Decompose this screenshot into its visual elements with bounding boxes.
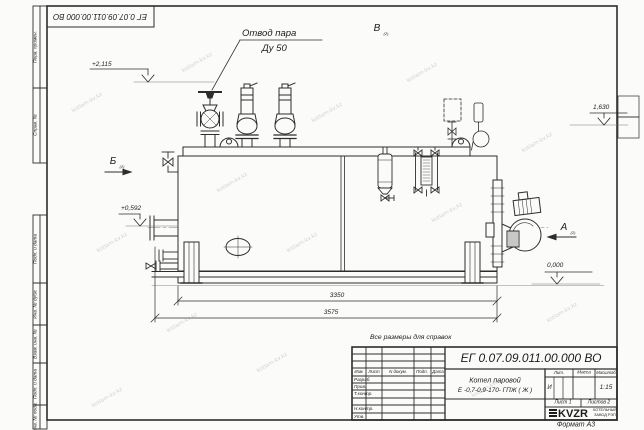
row-utv: Утв.	[354, 415, 364, 420]
view-arrow-a	[548, 234, 576, 239]
margin-stamp-sprav-no: Справ. №	[35, 114, 40, 136]
elevation-zero: 0,000	[547, 263, 563, 270]
support-leg-right	[462, 242, 483, 283]
view-label-b: Б	[110, 157, 117, 167]
left-pipe-elbow	[150, 216, 178, 240]
drain-nozzles	[146, 250, 178, 271]
margin-stamp-perv-primen: Перв. примен.	[35, 31, 40, 63]
view-label-a: А	[561, 223, 568, 233]
mass-header: Масса	[577, 371, 591, 376]
lit-value: И	[547, 385, 551, 391]
elevation-right: 1,630	[593, 105, 609, 112]
lifting-lug-left	[220, 138, 238, 147]
view-label-a-ref: (2)	[571, 231, 576, 235]
burner	[502, 191, 541, 252]
row-razrab: Разраб.	[354, 378, 371, 383]
col-data: Дата	[432, 370, 444, 374]
logo-sub2: ЗАВОД РЭП	[594, 414, 616, 418]
doc-number-rotated: ЕГ 0.07.09.011.00.000 ВО	[53, 12, 147, 20]
margin-stamp-inv-dubl: Инв. № дубл.	[35, 289, 40, 319]
sheets-total: Листов 2	[588, 401, 610, 406]
dimension-3350: 3350	[330, 293, 344, 300]
margin-stamp-podp-data-2: Подп. и дата	[35, 369, 40, 399]
kvzr-logo: KVZR	[549, 409, 588, 420]
left-head-valve	[162, 152, 178, 172]
scale-value: 1:15	[600, 385, 613, 392]
margin-stamp-podp-data-1: Подп. и дата	[35, 234, 40, 264]
view-arrow-b	[105, 169, 131, 174]
product-name-line1: Котел паровой	[469, 376, 521, 383]
elevation-mid: +0,592	[121, 206, 141, 213]
dimension-3575: 3575	[324, 310, 338, 317]
lit-header: Лит.	[554, 371, 564, 375]
view-label-v-ref: (2)	[384, 32, 389, 36]
margin-stamp-boxes	[33, 6, 47, 429]
margin-stamp-inv-podl: Инв. № подл.	[35, 402, 40, 430]
engineering-drawing-sheet: kotlam-kv.kz kotlam-kv.kz kotlam-kv.kz k…	[0, 0, 644, 430]
title-doc-number: ЕГ 0.07.09.011.00.000 ВО	[461, 352, 602, 364]
steam-outlet-label-line2: Ду 50	[262, 44, 287, 54]
reference-note: Все размеры для справок	[370, 335, 451, 342]
col-list: Лист	[368, 370, 379, 374]
sheet-number: Лист 1	[554, 401, 571, 406]
margin-stamp-vzam-inv: Взам. инв. №	[35, 329, 40, 359]
elevation-top: +2,115	[92, 62, 112, 69]
view-label-v: В	[374, 24, 381, 34]
safety-valve-2	[274, 83, 296, 147]
kvzr-logo-text: KVZR	[558, 408, 588, 420]
col-izm: Изм.	[354, 370, 363, 374]
format-note: Формат А3	[557, 422, 595, 429]
steam-outlet-label-line1: Отвод пара	[242, 29, 296, 39]
scale-header: Масштаб	[596, 371, 616, 375]
kvzr-logo-mark	[549, 409, 557, 418]
steam-outlet-valve	[197, 92, 223, 147]
view-label-b-ref: (2)	[120, 165, 125, 169]
col-ndoc: N докум.	[389, 370, 407, 374]
col-podp: Подп.	[416, 370, 428, 374]
row-prov: Пров.	[354, 385, 366, 390]
row-tkontr: Т.контр.	[354, 392, 373, 397]
product-name-line2: Е -0,7-0,9-170- ГПЖ ( Ж )	[458, 388, 532, 394]
safety-valve-1	[236, 83, 258, 147]
row-nkontr: Н.контр.	[354, 407, 373, 412]
support-leg-left	[181, 242, 202, 283]
